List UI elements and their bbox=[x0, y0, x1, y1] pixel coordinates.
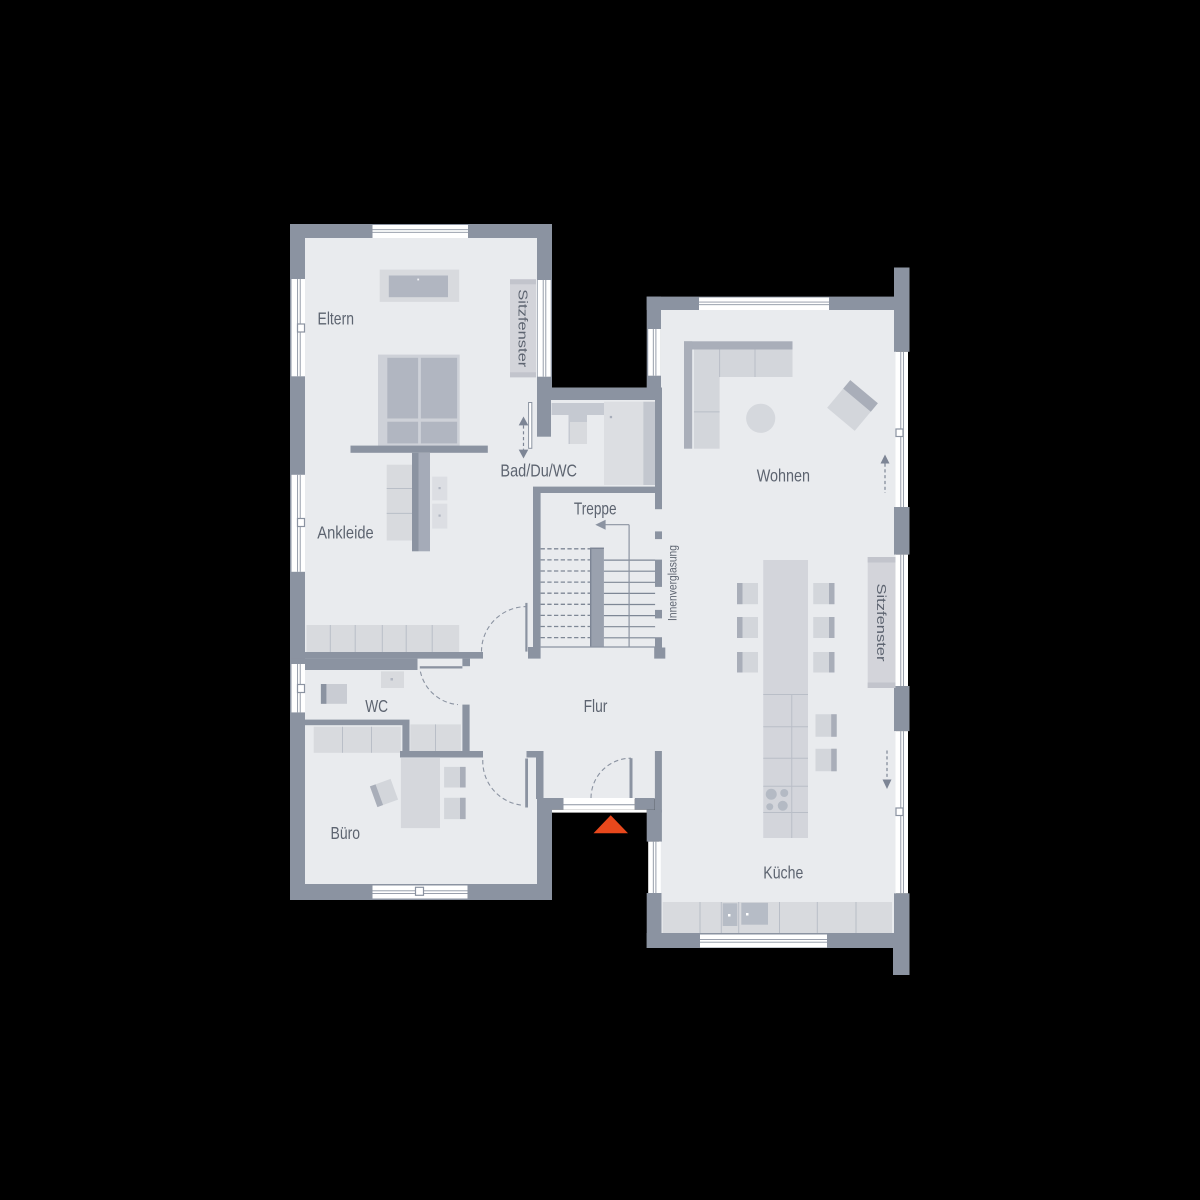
svg-text:Bad/Du/WC: Bad/Du/WC bbox=[500, 461, 577, 481]
svg-text:Ankleide: Ankleide bbox=[317, 522, 373, 542]
svg-text:Treppe: Treppe bbox=[574, 499, 617, 519]
svg-text:Sitzfenster: Sitzfenster bbox=[874, 584, 889, 663]
svg-text:Innenverglasung: Innenverglasung bbox=[668, 545, 680, 621]
svg-text:Sitzfenster: Sitzfenster bbox=[516, 289, 531, 368]
svg-text:Flur: Flur bbox=[584, 696, 608, 716]
svg-text:Küche: Küche bbox=[763, 863, 803, 883]
svg-text:Eltern: Eltern bbox=[318, 309, 355, 329]
svg-text:Büro: Büro bbox=[331, 823, 361, 843]
svg-text:WC: WC bbox=[365, 696, 388, 716]
svg-text:Wohnen: Wohnen bbox=[757, 465, 810, 485]
